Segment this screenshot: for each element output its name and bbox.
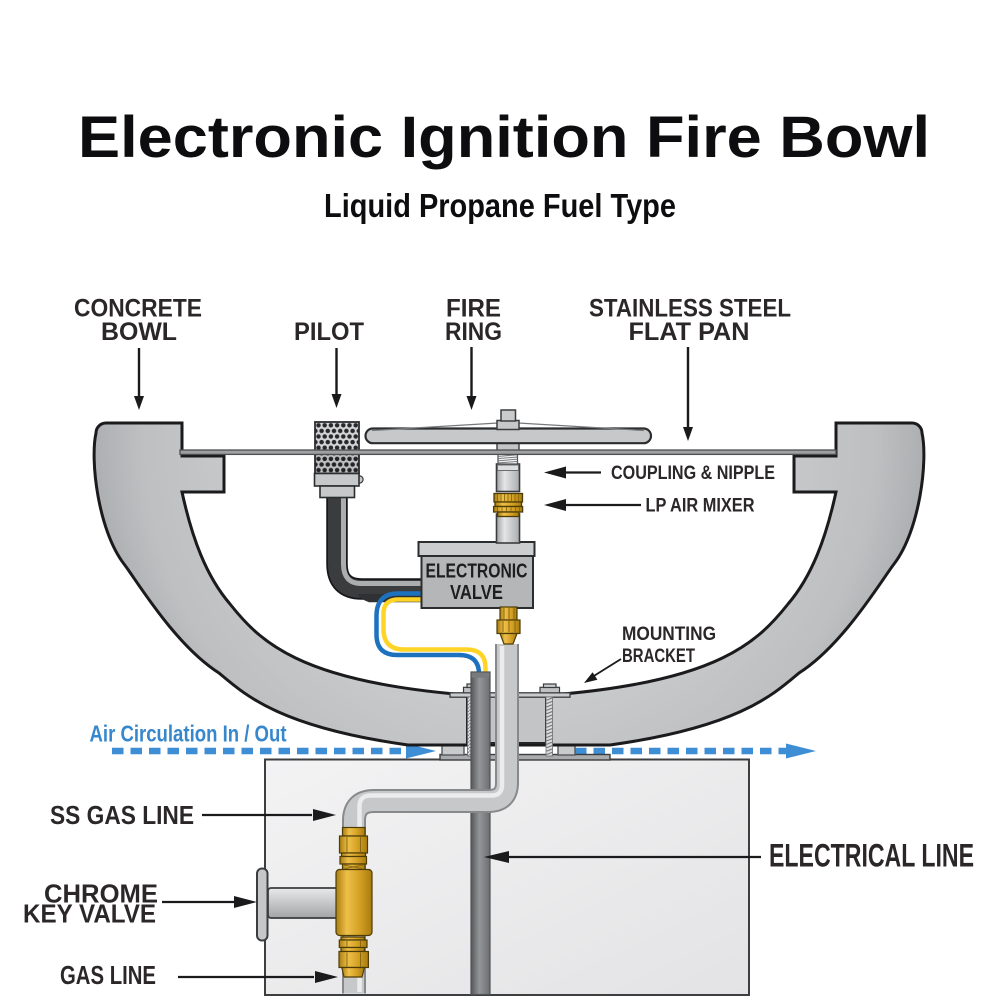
svg-text:RING: RING: [445, 318, 502, 346]
svg-text:LP AIR MIXER: LP AIR MIXER: [646, 496, 755, 517]
svg-text:Air Circulation In / Out: Air Circulation In / Out: [90, 721, 287, 747]
svg-text:GAS LINE: GAS LINE: [60, 960, 156, 990]
svg-text:PILOT: PILOT: [294, 318, 364, 346]
svg-text:Liquid Propane Fuel Type: Liquid Propane Fuel Type: [324, 187, 676, 224]
svg-text:ELECTRONIC: ELECTRONIC: [426, 560, 528, 583]
svg-text:ELECTRICAL LINE: ELECTRICAL LINE: [769, 838, 974, 874]
svg-text:Electronic Ignition Fire Bowl: Electronic Ignition Fire Bowl: [78, 105, 930, 170]
svg-text:KEY VALVE: KEY VALVE: [23, 899, 156, 929]
svg-text:BRACKET: BRACKET: [622, 646, 695, 667]
svg-text:COUPLING & NIPPLE: COUPLING & NIPPLE: [611, 463, 775, 484]
svg-text:SS GAS LINE: SS GAS LINE: [50, 800, 194, 830]
svg-text:VALVE: VALVE: [450, 581, 503, 604]
svg-text:BOWL: BOWL: [101, 318, 177, 346]
svg-text:MOUNTING: MOUNTING: [622, 624, 716, 645]
svg-text:FLAT PAN: FLAT PAN: [629, 318, 750, 346]
